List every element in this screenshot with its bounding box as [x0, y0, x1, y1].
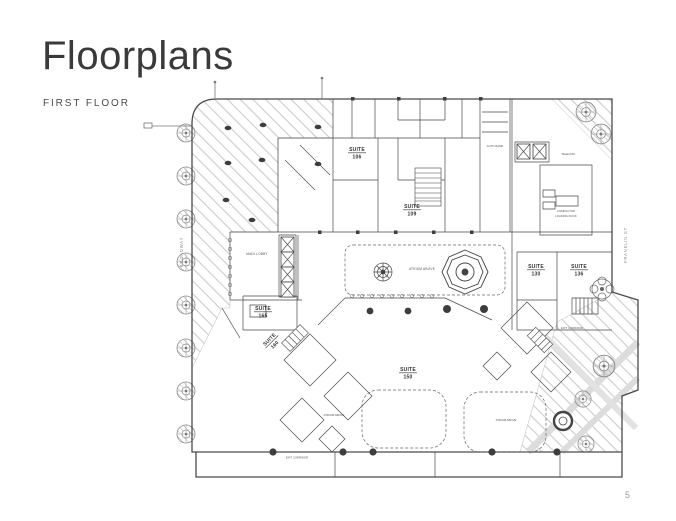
- svg-text:109: 109: [408, 212, 417, 218]
- svg-text:SUITE: SUITE: [349, 147, 365, 153]
- suite-label-136: SUITE 136: [570, 264, 588, 278]
- tree-icon: [593, 355, 615, 377]
- atrium-above-label: ATRIUM ABOVE: [324, 413, 345, 417]
- svg-text:106: 106: [353, 155, 362, 161]
- floorplan-drawing: SUITE 106 SUITE 109 SUITE 130 SUITE 136 …: [0, 0, 676, 521]
- loading-dock-label: LOADING DOCK: [555, 214, 577, 218]
- fountain-icon: [554, 412, 572, 430]
- hatched-southeast-plaza: [520, 292, 638, 452]
- suite-label-130: SUITE 130: [527, 264, 545, 278]
- telecom-label: TELECOM: [561, 152, 575, 156]
- street-label-franklin: FRANKLIN ST: [623, 227, 628, 263]
- elevator-bank-northeast: [517, 144, 546, 159]
- compactor-label: COMPACTOR: [557, 209, 575, 213]
- exit-corridor-label: EXIT CORRIDOR: [286, 456, 308, 460]
- scalloped-edges: [228, 238, 433, 297]
- elevator-icon: [533, 144, 546, 159]
- floor-medallion: [374, 263, 392, 281]
- elevator-icon: [281, 252, 294, 267]
- suite-label-165: SUITE 165: [254, 306, 272, 320]
- auto-ramp-label: AUTO RAMP: [487, 144, 504, 148]
- svg-text:SUITE: SUITE: [255, 306, 271, 312]
- svg-text:SUITE: SUITE: [528, 264, 544, 270]
- suite-label-160: SUITE 160: [261, 331, 283, 353]
- hatched-northwest-wedge: [192, 99, 333, 368]
- svg-text:150: 150: [404, 375, 413, 381]
- street-label-broadway: BROADWAY: [179, 237, 184, 267]
- atrium-above-label: ATRIUM ABOVE: [496, 418, 517, 422]
- stairs-icon: [282, 325, 309, 352]
- elevator-icon: [281, 267, 294, 282]
- suite-label-106: SUITE 106: [348, 147, 366, 161]
- page-number: 5: [625, 490, 630, 500]
- tree-icon: [578, 436, 594, 452]
- tree-icon: [576, 102, 596, 122]
- svg-text:SUITE: SUITE: [571, 264, 587, 270]
- stairs-icon: [527, 327, 552, 352]
- svg-text:130: 130: [532, 272, 541, 278]
- stairs-icon: [415, 168, 441, 206]
- elevator-bank-core: [281, 237, 294, 297]
- atrium-above-label: ATRIUM ABOVE: [409, 267, 435, 271]
- svg-text:SUITE: SUITE: [404, 204, 420, 210]
- atrium-octagon: [442, 250, 488, 294]
- svg-text:SUITE: SUITE: [400, 367, 416, 373]
- main-lobby-label: MAIN LOBBY: [246, 252, 268, 256]
- svg-text:165: 165: [259, 314, 268, 320]
- suite-label-109: SUITE 109: [403, 204, 421, 218]
- tree-icon: [575, 391, 591, 407]
- elevator-icon: [281, 282, 294, 297]
- suite-label-150: SUITE 150: [399, 367, 417, 381]
- exit-corridor-label: EXIT CORRIDOR: [561, 326, 583, 330]
- elevator-icon: [517, 144, 530, 159]
- tree-icon: [591, 124, 611, 144]
- elevator-icon: [281, 237, 294, 252]
- svg-text:136: 136: [575, 272, 584, 278]
